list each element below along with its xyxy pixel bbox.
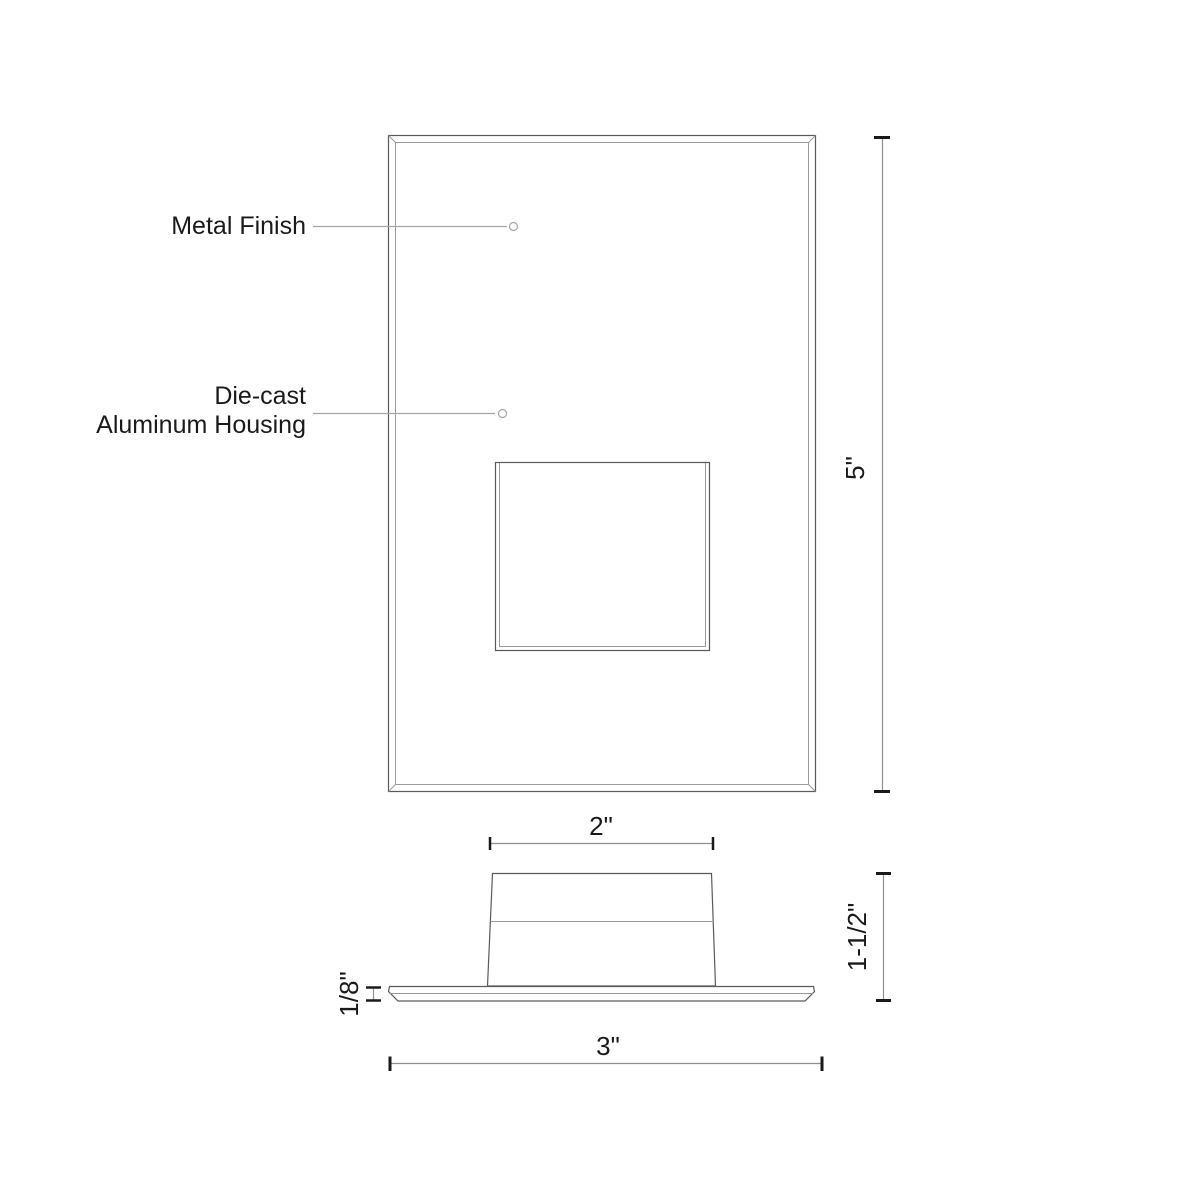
housing-front-outline	[496, 463, 710, 651]
dim-overall-depth-label: 1-1/2"	[842, 903, 872, 972]
callout-housing-label-line2: Aluminum Housing	[96, 411, 306, 439]
callout-housing: Die-cast Aluminum Housing	[96, 382, 506, 439]
callout-housing-endpoint	[499, 410, 507, 418]
faceplate-inner-outline	[396, 143, 809, 785]
faceplate-corner-miter	[809, 136, 816, 143]
faceplate-outer-outline	[389, 136, 816, 792]
callout-housing-label-line1: Die-cast	[214, 382, 306, 410]
dim-plate-thickness: 1/8"	[334, 971, 381, 1016]
faceplate-corner-miter	[389, 136, 396, 143]
dim-overall-height-label: 5"	[840, 456, 870, 480]
spec-sheet-drawing: Metal Finish Die-cast Aluminum Housing 5…	[0, 0, 1200, 1200]
dim-plate-thickness-label: 1/8"	[334, 971, 364, 1016]
dim-overall-height: 5"	[840, 138, 890, 792]
faceplate-corner-miter	[389, 785, 396, 792]
front-view	[389, 136, 816, 792]
dim-plate-width-label: 3"	[596, 1031, 620, 1061]
dim-plate-width: 3"	[390, 1031, 822, 1071]
callout-metal-finish-label: Metal Finish	[171, 212, 306, 240]
side-view	[389, 874, 815, 1002]
faceplate-corner-miter	[809, 785, 816, 792]
dimension-drawing-svg: Metal Finish Die-cast Aluminum Housing 5…	[0, 0, 1200, 1200]
dim-housing-face-width-label: 2"	[589, 811, 613, 841]
side-housing-outline	[488, 874, 716, 987]
callout-metal-finish: Metal Finish	[171, 212, 517, 240]
dim-overall-depth: 1-1/2"	[842, 874, 891, 1001]
dim-housing-face-width: 2"	[490, 811, 713, 850]
callout-metal-finish-endpoint	[510, 223, 518, 231]
